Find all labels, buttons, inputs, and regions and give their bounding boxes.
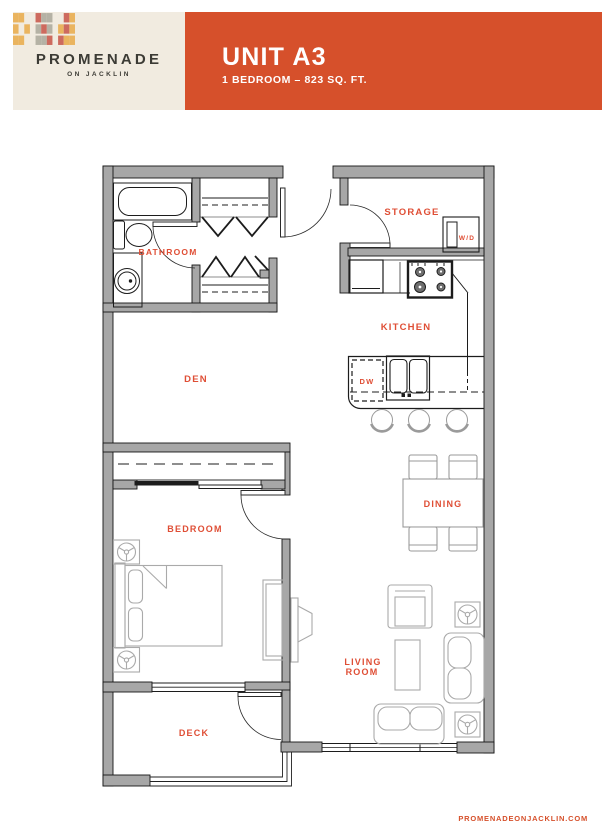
bathtub-basin-icon (119, 188, 187, 216)
floor-plan: BATHROOM STORAGE W/D KITCHEN DW DEN BEDR… (0, 0, 602, 839)
tv-console-icon (291, 598, 298, 662)
storage-door-leaf (350, 243, 390, 248)
deck-railing (150, 752, 292, 786)
sliding-door-icon (135, 482, 198, 486)
bathroom-fixtures (114, 183, 192, 307)
tv-icon (298, 606, 312, 642)
stool-icon (447, 410, 468, 431)
label-dishwasher: DW (360, 377, 375, 386)
coffee-table-icon (395, 640, 420, 690)
label-washer-dryer: W/D (459, 235, 475, 242)
bifold-door-icon (236, 217, 268, 236)
bed-icon (125, 566, 222, 647)
bedroom-door-leaf (241, 491, 285, 496)
bifold-door-icon (231, 257, 259, 277)
toilet-tank-icon (114, 221, 125, 249)
room-label-living-2: ROOM (346, 667, 379, 677)
room-label-bedroom: BEDROOM (167, 524, 222, 534)
bifold-door-icon (202, 257, 230, 277)
room-label-kitchen: KITCHEN (381, 322, 432, 333)
bar-stools (371, 410, 468, 432)
deck-door-swing (238, 697, 281, 740)
bifold-door-icon (202, 217, 234, 236)
bedroom-door-swing (241, 495, 285, 539)
entry-door-swing (283, 189, 331, 237)
website-url: PROMENADEONJACKLIN.COM (458, 814, 588, 823)
headboard-icon (115, 563, 125, 648)
windows (152, 683, 457, 752)
deck-door-leaf (238, 693, 281, 697)
pillow-icon (129, 608, 143, 641)
stool-icon (409, 410, 430, 431)
stool-icon (372, 410, 393, 431)
bathroom-door-leaf (153, 222, 197, 227)
pillow-icon (129, 570, 143, 603)
room-label-living-1: LIVING (344, 657, 381, 667)
bedroom-furniture (114, 540, 286, 672)
room-label-den: DEN (184, 374, 208, 385)
room-label-deck: DECK (179, 728, 209, 738)
toilet-bowl-icon (126, 224, 152, 247)
dining-chair-icon (409, 455, 437, 479)
entry-door-leaf (281, 188, 286, 237)
kitchen-fixtures (349, 260, 485, 409)
stove-icon (408, 262, 452, 298)
hall-closets (200, 198, 269, 292)
dining-chair-icon (449, 527, 477, 551)
living-room-furniture (291, 585, 484, 744)
dining-chair-icon (449, 455, 477, 479)
room-label-storage: STORAGE (384, 207, 439, 218)
room-label-dining: DINING (424, 499, 463, 509)
dining-chair-icon (409, 527, 437, 551)
room-label-bathroom: BATHROOM (138, 247, 197, 257)
sliding-door-icon (199, 485, 262, 489)
floorplan-page: { "brand": { "logo_text": "PROMENADE", "… (0, 0, 602, 839)
bedroom-closet (113, 452, 285, 489)
